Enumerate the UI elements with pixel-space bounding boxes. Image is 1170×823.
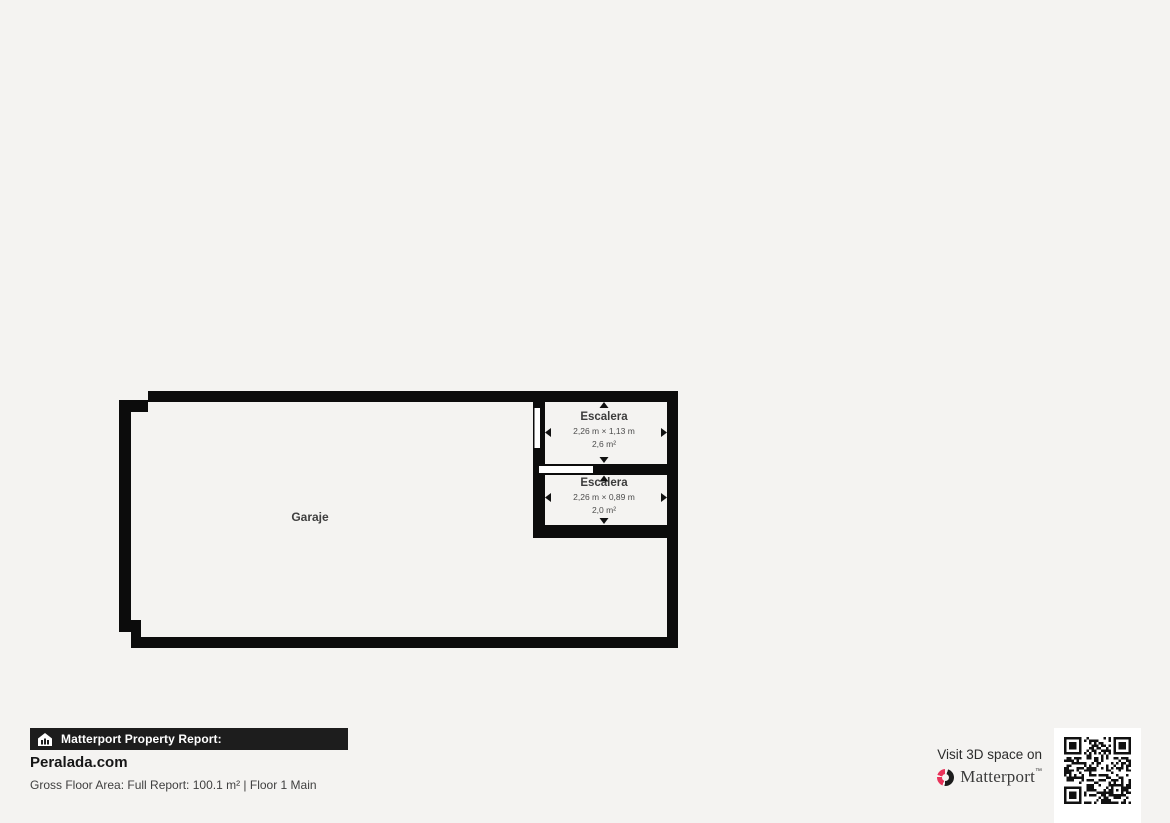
stair-upper-area: 2,6 m²	[592, 439, 616, 449]
matterport-brand: Matterport™	[900, 767, 1042, 787]
report-bar-label: Matterport Property Report:	[61, 732, 222, 746]
qr-code	[1054, 728, 1141, 823]
floor-plan: Garaje Escalera 2,26 m × 1,13 m 2,6 m² E…	[115, 387, 685, 653]
stair-upper-dimensions: 2,26 m × 1,13 m	[573, 426, 635, 436]
stair-upper-room: Escalera 2,26 m × 1,13 m 2,6 m²	[573, 411, 635, 449]
report-bar: Matterport Property Report:	[30, 728, 348, 750]
stair-lower-area: 2,0 m²	[592, 505, 616, 515]
visit-3d-text: Visit 3D space on	[900, 747, 1042, 762]
building-icon	[38, 733, 52, 746]
site-name: Peralada.com	[30, 754, 128, 771]
stair-lower-dimensions: 2,26 m × 0,89 m	[573, 492, 635, 502]
visit-3d-block: Visit 3D space on Matterport™	[900, 747, 1042, 787]
matterport-wordmark: Matterport	[960, 767, 1035, 786]
area-summary-line: Gross Floor Area: Full Report: 100.1 m² …	[30, 778, 317, 792]
garage-room-label: Garaje	[291, 510, 329, 524]
stair-upper-label: Escalera	[580, 411, 628, 423]
matterport-logo-icon	[937, 769, 954, 786]
trademark-symbol: ™	[1035, 768, 1042, 775]
stair-lower-room: Escalera 2,26 m × 0,89 m 2,0 m²	[573, 477, 635, 515]
